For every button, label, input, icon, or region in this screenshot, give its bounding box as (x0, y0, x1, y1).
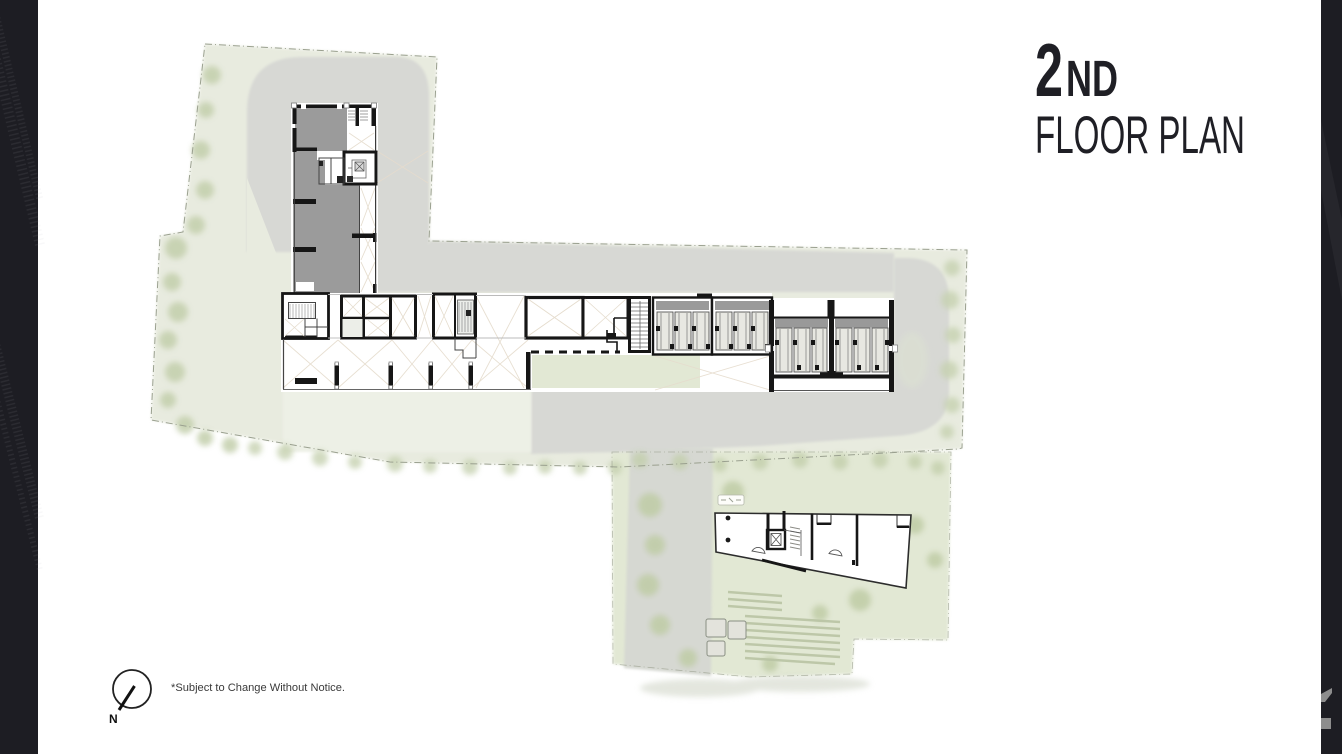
svg-text:*Subject to Change Without Not: *Subject to Change Without Notice. (171, 682, 345, 694)
svg-text:ND: ND (1066, 50, 1118, 107)
svg-text:2: 2 (1035, 28, 1063, 112)
svg-text:FLOOR PLAN: FLOOR PLAN (1035, 106, 1245, 165)
svg-text:N: N (109, 712, 118, 726)
